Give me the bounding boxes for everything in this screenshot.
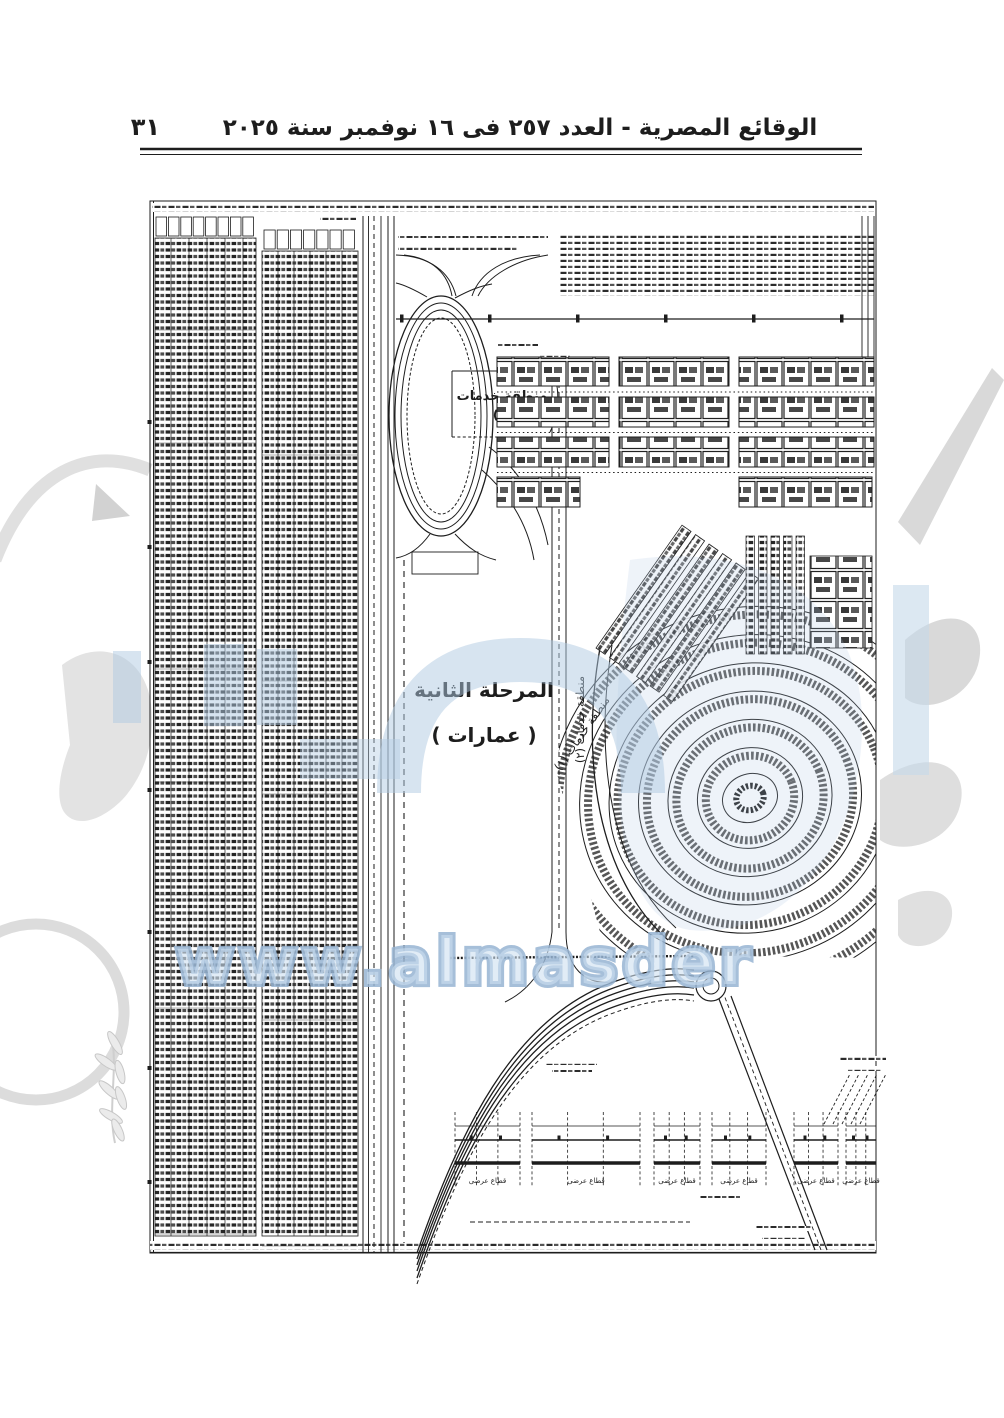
cross-section-label: قطاع عرضى xyxy=(797,1177,834,1185)
map-bottom-text-band xyxy=(150,1241,876,1250)
watermark-ribbon-right xyxy=(898,368,1004,545)
site-plan-map: منطقة خدمات (٢) المرحلة الثانية ( عمارات… xyxy=(148,201,1004,1284)
page-number: ٣١ xyxy=(131,113,160,141)
page-title: الوقائع المصرية - العدد ٢٥٧ فى ١٦ نوفمبر… xyxy=(223,115,818,141)
page-header: ٣١ الوقائع المصرية - العدد ٢٥٧ فى ١٦ نوف… xyxy=(131,113,862,155)
small-plot xyxy=(412,552,478,574)
cross-section-diagram: قطاع عرضى xyxy=(532,1112,640,1186)
phase-subtitle-label: ( عمارات ) xyxy=(431,723,536,747)
watermark-swirl-3 xyxy=(898,891,952,946)
top-band xyxy=(396,232,874,319)
watermark-url: www.almasder xyxy=(175,926,754,1000)
watermark-wedge xyxy=(92,484,130,521)
cross-section-diagram: قطاع عرضى xyxy=(842,1112,879,1186)
watermark-arc xyxy=(0,461,150,560)
cross-section-label: قطاع عرضى xyxy=(469,1177,506,1185)
plot-schedule-table-left xyxy=(155,238,358,1236)
cross-section-label: قطاع عرضى xyxy=(567,1177,604,1185)
gazette-page: ٣١ الوقائع المصرية - العدد ٢٥٧ فى ١٦ نوف… xyxy=(0,0,1004,1418)
cross-section-diagram: قطاع عرضى xyxy=(654,1112,700,1186)
page-scan: ٣١ الوقائع المصرية - العدد ٢٥٧ فى ١٦ نوف… xyxy=(0,0,1004,1418)
map-top-text-band xyxy=(152,203,874,212)
cross-section-label: قطاع عرضى xyxy=(842,1177,879,1185)
southeast-road xyxy=(719,996,827,1250)
watermark-circle xyxy=(0,924,124,1100)
cross-section-label: قطاع عرضى xyxy=(720,1177,757,1185)
cross-section-label: قطاع عرضى xyxy=(658,1177,695,1185)
cross-section-diagram: قطاع عرضى xyxy=(794,1112,838,1186)
cross-section-diagram: قطاع عرضى xyxy=(712,1112,766,1186)
